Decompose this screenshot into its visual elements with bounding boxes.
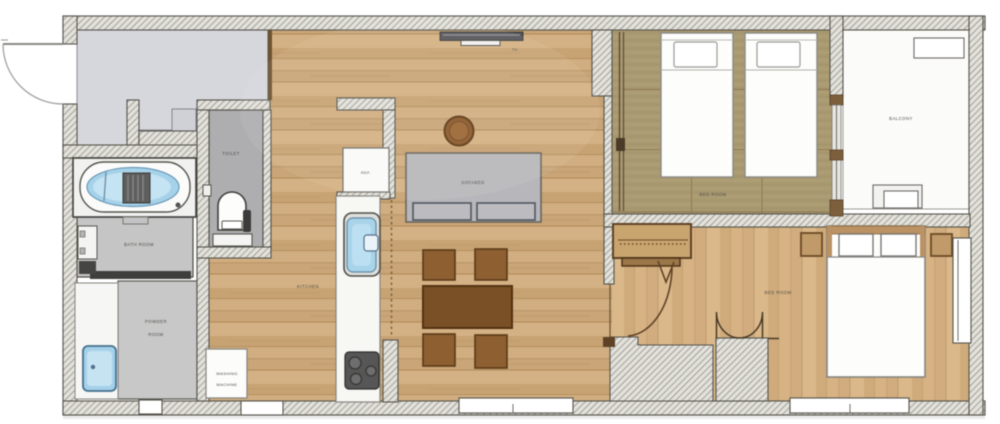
svg-text:BATH ROOM: BATH ROOM	[124, 242, 154, 247]
svg-text:ROOM: ROOM	[148, 332, 163, 337]
svg-text:POWDER: POWDER	[145, 319, 167, 324]
svg-text:WASHING: WASHING	[216, 371, 237, 376]
svg-text:MACHINE: MACHINE	[217, 382, 238, 387]
svg-text:KITCHEN: KITCHEN	[297, 284, 319, 289]
svg-text:BED ROOM: BED ROOM	[765, 290, 792, 295]
svg-text:BALCONY: BALCONY	[889, 116, 913, 121]
svg-text:BED ROOM: BED ROOM	[700, 192, 727, 197]
svg-text:TOILET: TOILET	[222, 151, 240, 156]
